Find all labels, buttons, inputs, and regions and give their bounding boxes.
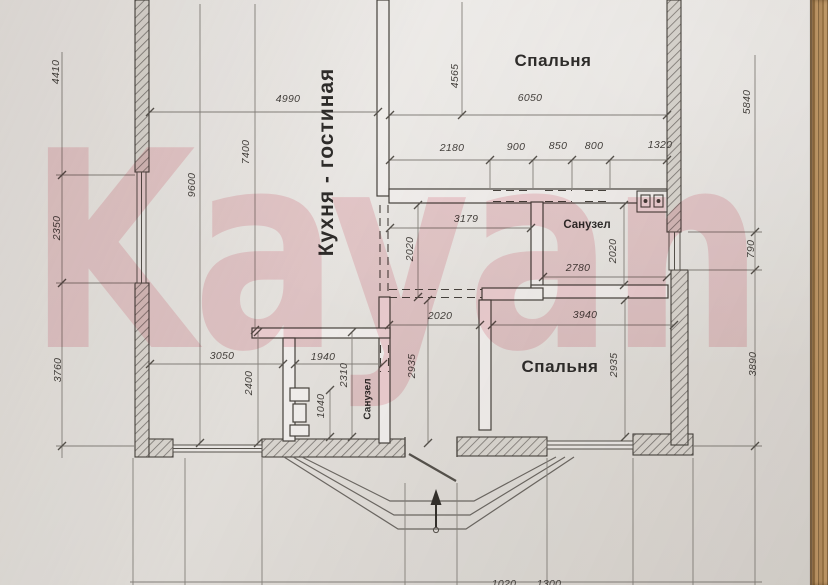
dim-left-mid: 2350 — [51, 216, 63, 241]
dim-kitchen-width: 4990 — [276, 93, 301, 105]
dim-seg-d: 800 — [585, 140, 603, 152]
dim-hall-opening-height: 2020 — [404, 237, 416, 262]
dim-kitchen-nook-height: 2400 — [243, 371, 255, 396]
dim-bath-bottom-fixture: 1040 — [315, 394, 327, 419]
dim-right-bottom: 3890 — [747, 352, 759, 377]
plan-labels: Кухня - гостиная Спальня Спальня Санузел… — [0, 0, 828, 585]
dim-bedroom-bottom-height-left: 2935 — [406, 354, 418, 379]
room-label-bathroom-bottom: Санузел — [363, 378, 374, 419]
dim-bottom-cut-a: 1020 — [492, 578, 517, 585]
dim-bedroom-bottom-height-right: 2935 — [608, 353, 620, 378]
room-label-bathroom-mid: Санузел — [563, 219, 610, 231]
dim-bath-bottom-width: 1940 — [311, 351, 336, 363]
dim-left-bottom: 3760 — [52, 358, 64, 383]
room-label-kitchen-living: Кухня - гостиная — [315, 68, 339, 257]
dim-hall-width: 3179 — [454, 213, 479, 225]
dim-seg-a: 2180 — [440, 142, 465, 154]
dim-bedroom-top-height: 4565 — [449, 64, 461, 89]
dim-right-top: 5840 — [741, 90, 753, 115]
dim-kitchen-nook-width: 3050 — [210, 350, 235, 362]
dim-seg-b: 900 — [507, 141, 525, 153]
dim-bottom-cut-b: 1300 — [537, 578, 562, 585]
room-label-bedroom-top: Спальня — [515, 51, 592, 71]
floor-plan-photo: Кухня - гостиная Спальня Спальня Санузел… — [0, 0, 828, 585]
dim-bedroom-bottom-width: 3940 — [573, 309, 598, 321]
dim-right-mid: 790 — [745, 240, 757, 258]
dim-left-top: 4410 — [50, 60, 62, 85]
dim-bath-mid-height: 2020 — [607, 239, 619, 264]
dim-bath-bottom-height: 2310 — [338, 363, 350, 388]
dim-bedroom-bottom-opening: 2020 — [428, 310, 453, 322]
room-label-bedroom-bottom: Спальня — [522, 357, 599, 377]
dim-interior-height: 9600 — [186, 173, 198, 198]
dim-bath-mid-width: 2780 — [566, 262, 591, 274]
dim-seg-e: 1320 — [648, 139, 673, 151]
dim-bedroom-top-width: 6050 — [518, 92, 543, 104]
dim-kitchen-height: 7400 — [240, 140, 252, 165]
dim-seg-c: 850 — [549, 140, 567, 152]
